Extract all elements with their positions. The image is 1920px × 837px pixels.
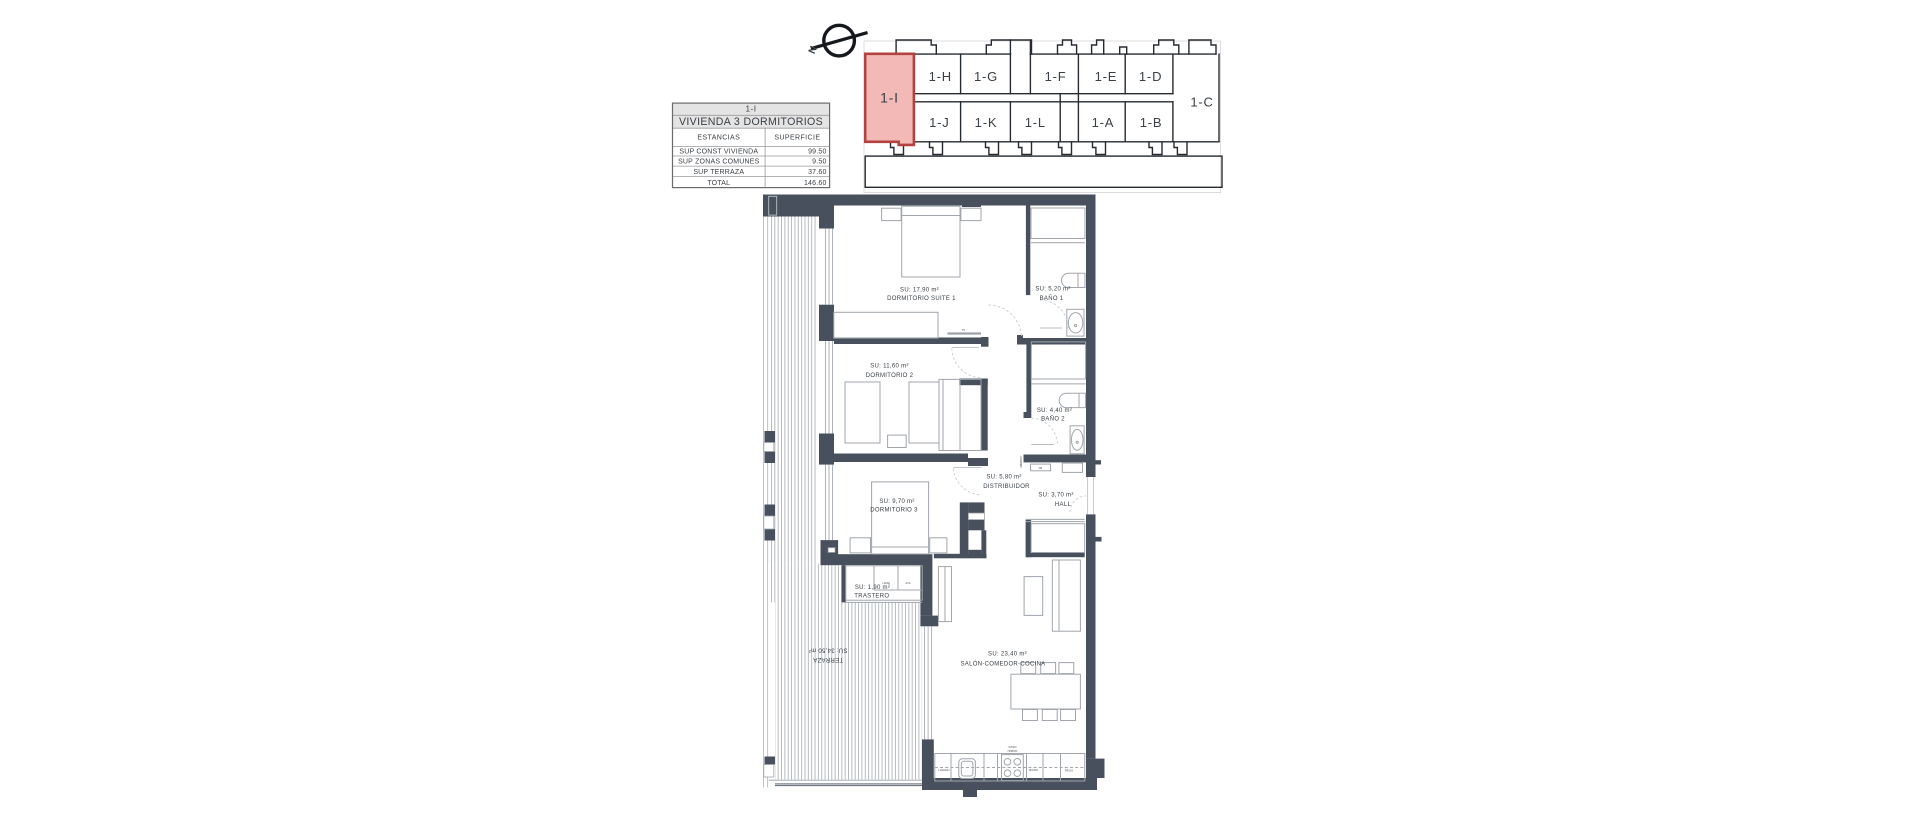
svg-text:BAÑO 2: BAÑO 2 [1041,416,1065,423]
svg-text:TERRAZA: TERRAZA [813,656,843,662]
svg-text:1-K: 1-K [975,115,998,130]
svg-text:LAVAD: LAVAD [882,582,890,585]
svg-text:1-A: 1-A [1092,115,1115,130]
svg-text:SU: 5,20 m²: SU: 5,20 m² [1035,287,1070,293]
svg-text:TRASTERO: TRASTERO [854,594,889,600]
svg-text:SU: 1,90 m²: SU: 1,90 m² [855,585,890,591]
svg-text:SALÓN-COMEDOR-COCINA: SALÓN-COMEDOR-COCINA [960,661,1045,668]
svg-text:1-I: 1-I [745,105,756,114]
svg-text:99.50: 99.50 [808,149,827,156]
svg-text:ESTANCIAS: ESTANCIAS [697,135,740,142]
svg-text:ACS: ACS [905,582,910,585]
svg-text:ARMARIO: ARMARIO [1020,456,1023,468]
svg-text:1-F: 1-F [1045,69,1067,84]
svg-text:SUPERFICIE: SUPERFICIE [774,135,820,142]
svg-text:CB: CB [1039,467,1043,470]
svg-text:MICRO: MICRO [1029,769,1038,772]
svg-text:DORMITORIO 3: DORMITORIO 3 [870,508,918,514]
svg-text:1-D: 1-D [1139,69,1162,84]
svg-text:1-C: 1-C [1190,94,1213,109]
svg-text:SU: 34,50 m²: SU: 34,50 m² [809,647,848,653]
svg-text:SU: 4,40 m²: SU: 4,40 m² [1037,408,1072,414]
svg-text:VIVIENDA 3 DORMITORIOS: VIVIENDA 3 DORMITORIOS [679,116,823,128]
svg-text:SU: 5,80 m²: SU: 5,80 m² [986,475,1021,481]
svg-text:TV: TV [962,328,966,332]
svg-text:VITRO: VITRO [1008,746,1016,749]
svg-text:SUP CONST VIVIENDA: SUP CONST VIVIENDA [679,149,758,156]
svg-text:SU: 17,90 m²: SU: 17,90 m² [900,288,939,294]
svg-text:SU: 23,40 m²: SU: 23,40 m² [988,652,1027,658]
svg-text:BAÑO 1: BAÑO 1 [1040,295,1064,302]
svg-text:37.60: 37.60 [808,169,827,176]
svg-text:SU: 9,70 m²: SU: 9,70 m² [879,499,914,505]
svg-text:1-E: 1-E [1095,69,1118,84]
svg-text:SUP ZONAS COMUNES: SUP ZONAS COMUNES [678,159,760,166]
svg-text:FRIGO: FRIGO [1065,770,1073,773]
svg-text:9.50: 9.50 [812,159,826,166]
svg-text:DORMITORIO SUITE 1: DORMITORIO SUITE 1 [887,296,956,302]
svg-text:1-J: 1-J [929,115,949,130]
svg-text:DORMITORIO 2: DORMITORIO 2 [866,373,914,379]
svg-text:TOTAL: TOTAL [707,180,730,187]
svg-text:SUP TERRAZA: SUP TERRAZA [693,169,744,176]
svg-text:HALL: HALL [1055,502,1072,508]
svg-text:1-B: 1-B [1140,115,1163,130]
svg-text:SU: 11,60 m²: SU: 11,60 m² [870,364,909,370]
svg-text:1-G: 1-G [974,69,998,84]
svg-text:SU: 3,70 m²: SU: 3,70 m² [1038,493,1073,499]
svg-text:1-I: 1-I [880,89,899,105]
svg-text:1-L: 1-L [1025,115,1046,130]
svg-text:HORNO: HORNO [1008,750,1018,753]
svg-text:1-H: 1-H [929,69,952,84]
svg-text:LAVAVAJ: LAVAVAJ [939,769,951,772]
svg-text:DISTRIBUIDOR: DISTRIBUIDOR [983,484,1030,490]
svg-text:146.60: 146.60 [804,180,827,187]
